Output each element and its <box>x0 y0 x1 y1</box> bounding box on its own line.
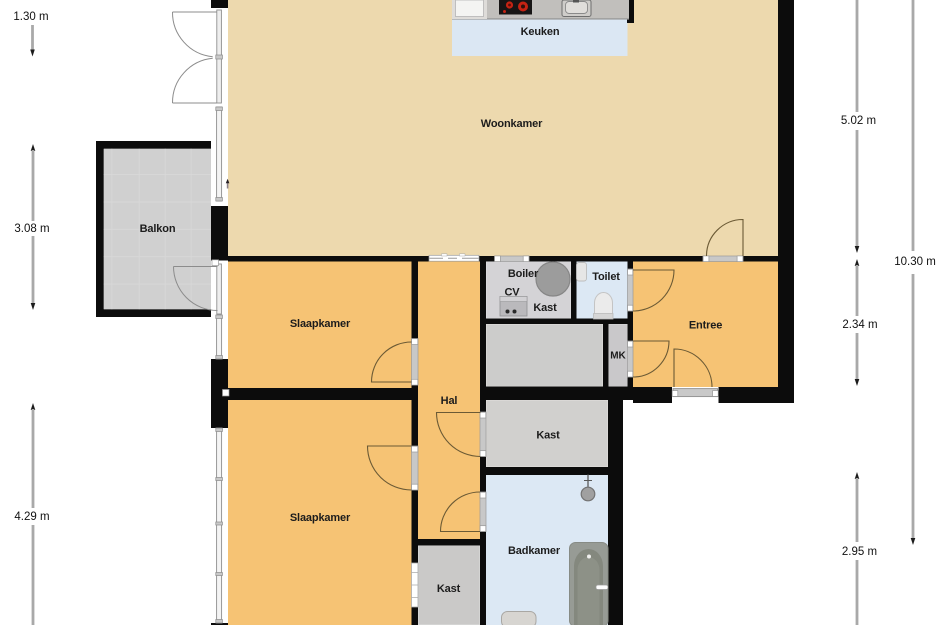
svg-text:Slaapkamer: Slaapkamer <box>290 512 351 524</box>
svg-text:2.34 m: 2.34 m <box>842 319 877 331</box>
svg-text:Badkamer: Badkamer <box>508 545 561 557</box>
svg-text:4.29 m: 4.29 m <box>14 511 49 523</box>
svg-text:CV: CV <box>505 287 521 299</box>
svg-text:Toilet: Toilet <box>592 271 620 283</box>
svg-text:Kast: Kast <box>437 583 461 595</box>
svg-text:1.30 m: 1.30 m <box>13 11 48 23</box>
svg-text:MK: MK <box>610 351 626 362</box>
svg-text:2.95 m: 2.95 m <box>842 546 877 558</box>
svg-text:Kast: Kast <box>536 430 560 442</box>
svg-text:Keuken: Keuken <box>521 26 560 38</box>
svg-text:5.02 m: 5.02 m <box>841 115 876 127</box>
svg-text:Woonkamer: Woonkamer <box>481 118 543 130</box>
svg-text:Slaapkamer: Slaapkamer <box>290 318 351 330</box>
svg-text:3.08 m: 3.08 m <box>14 223 49 235</box>
svg-text:Balkon: Balkon <box>140 223 176 235</box>
svg-text:Hal: Hal <box>441 395 458 407</box>
svg-text:Kast: Kast <box>533 302 557 314</box>
svg-text:Boiler: Boiler <box>508 268 539 280</box>
svg-text:Entree: Entree <box>689 320 722 332</box>
svg-text:10.30 m: 10.30 m <box>894 256 936 268</box>
